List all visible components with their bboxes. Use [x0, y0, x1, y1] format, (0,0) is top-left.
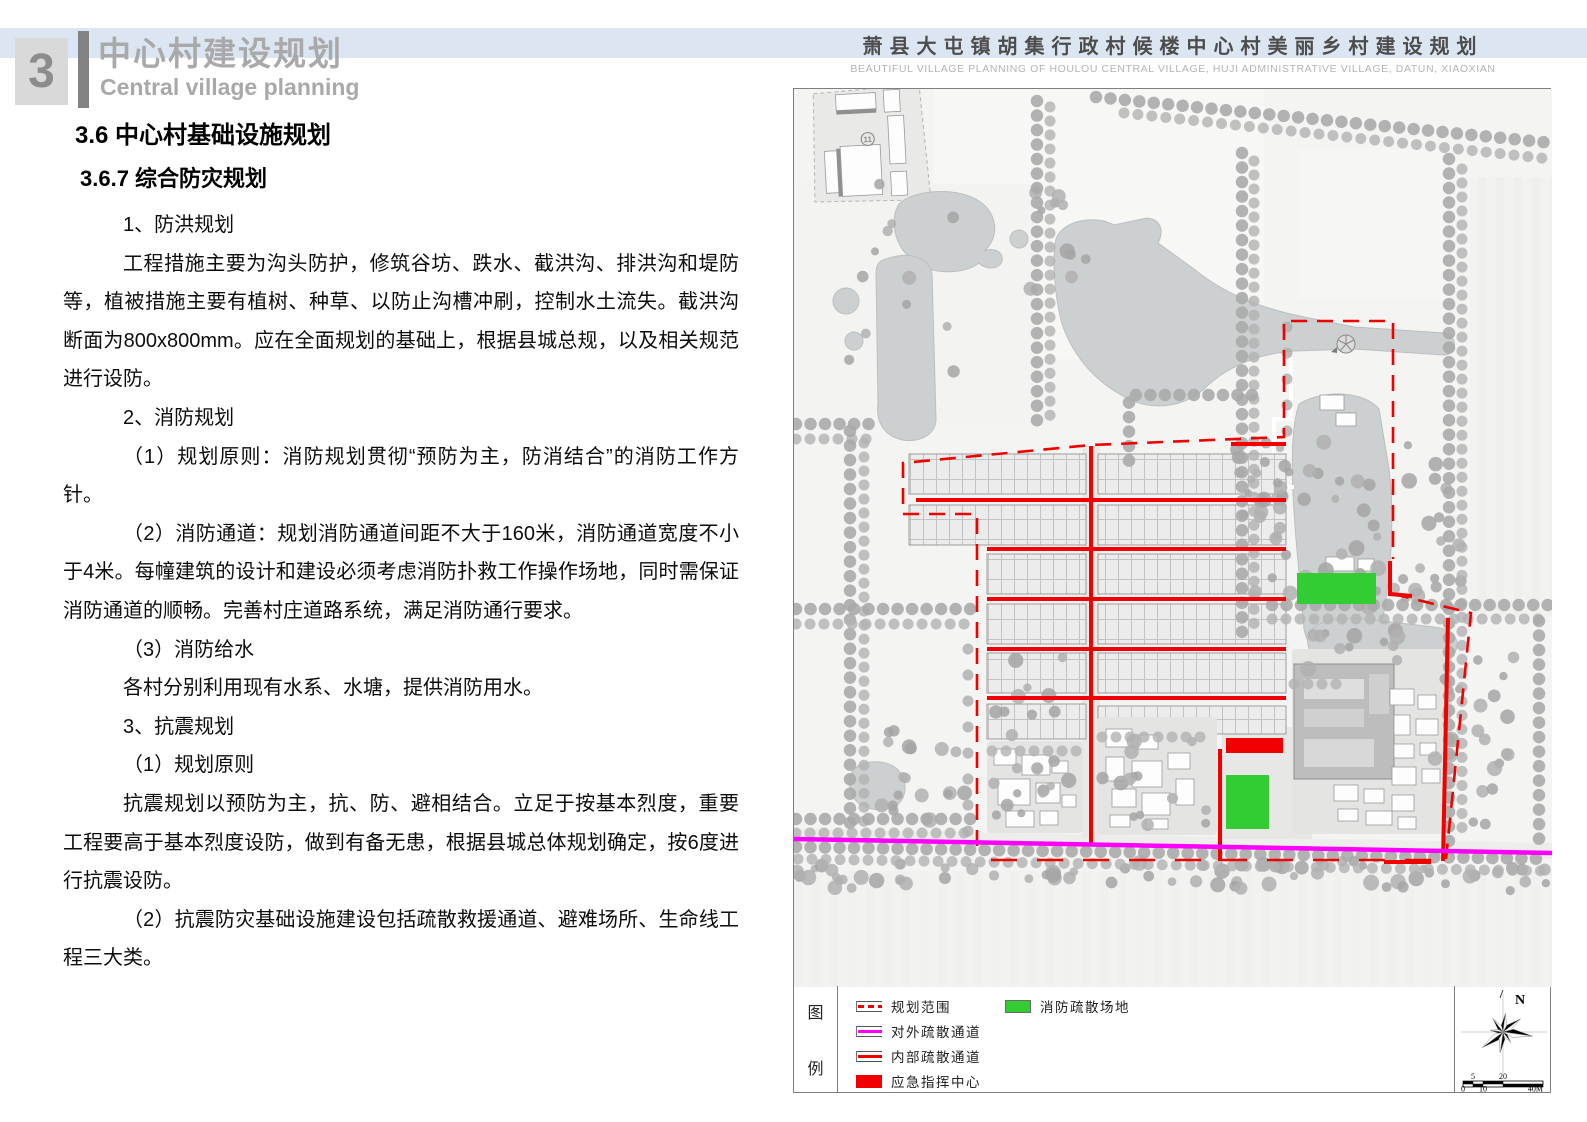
- body-paragraph: 1、防洪规划: [63, 206, 739, 245]
- emergency-command-center: [1226, 738, 1283, 753]
- chapter-number-box: 3: [15, 38, 68, 105]
- subsection-heading: 3.6.7 综合防灾规划: [80, 161, 267, 193]
- site-plan-svg: 11: [794, 89, 1552, 987]
- body-paragraph: 3、抗震规划: [63, 708, 739, 747]
- body-paragraph: （1）规划原则：消防规划贯彻“预防为主，防消结合”的消防工作方针。: [63, 438, 739, 515]
- chapter-divider-bar: [78, 31, 89, 108]
- legend-label: 内部疏散通道: [891, 1046, 981, 1066]
- section-heading: 3.6 中心村基础设施规划: [75, 115, 331, 150]
- svg-text:0: 0: [1461, 1085, 1465, 1093]
- farm-field-texture: [1470, 177, 1552, 617]
- red-rect-icon: [856, 1075, 882, 1088]
- north-label: N: [1515, 993, 1525, 1008]
- body-paragraph: （2）抗震防灾基础设施建设包括疏散救援通道、避难场所、生命线工程三大类。: [63, 901, 739, 978]
- red-dashed-line-icon: [856, 1001, 882, 1012]
- fire-evacuation-site-2: [1226, 775, 1269, 829]
- document-title-en: BEAUTIFUL VILLAGE PLANNING OF HOULOU CEN…: [793, 63, 1553, 75]
- legend-item: 对外疏散通道: [856, 1021, 981, 1041]
- legend-item: 消防疏散场地: [1005, 996, 1130, 1016]
- legend-label: 消防疏散场地: [1040, 996, 1130, 1016]
- body-paragraph: 2、消防规划: [63, 399, 739, 438]
- legend-title-char-2: 例: [807, 1055, 823, 1079]
- svg-text:20: 20: [1499, 1072, 1507, 1081]
- legend-items: 规划范围消防疏散场地对外疏散通道内部疏散通道应急指挥中心: [838, 986, 1454, 1092]
- svg-text:5: 5: [1471, 1072, 1475, 1081]
- magenta-line-icon: [856, 1026, 882, 1037]
- legend-label: 对外疏散通道: [891, 1021, 981, 1041]
- body-paragraph: （1）规划原则: [63, 746, 739, 785]
- north-arrow: N 5 20 0 10 40M: [1455, 986, 1550, 1092]
- chapter-number: 3: [28, 44, 55, 99]
- svg-text:10: 10: [1479, 1085, 1487, 1093]
- document-title-block: 萧县大屯镇胡集行政村候楼中心村美丽乡村建设规划 BEAUTIFUL VILLAG…: [793, 30, 1553, 75]
- body-paragraph: 抗震规划以预防为主，抗、防、避相结合。立足于按基本烈度，重要工程要高于基本烈度设…: [63, 785, 739, 901]
- legend-label: 规划范围: [891, 996, 951, 1016]
- legend-row: 应急指挥中心: [856, 1070, 1454, 1092]
- legend-title-char-1: 图: [807, 999, 823, 1023]
- body-paragraph: （2）消防通道：规划消防通道间距不大于160米，消防通道宽度不小于4米。每幢建筑…: [63, 515, 739, 631]
- body-paragraph: （3）消防给水: [63, 631, 739, 670]
- compass-cell: N 5 20 0 10 40M: [1454, 986, 1550, 1092]
- scale-bar: 5 20 0 10 40M: [1461, 1072, 1543, 1092]
- red-line-icon: [856, 1051, 882, 1062]
- legend-item: 规划范围: [856, 996, 951, 1016]
- site-plan-map: 11: [793, 88, 1551, 986]
- legend-row: 对外疏散通道: [856, 1020, 1454, 1042]
- legend-item: 应急指挥中心: [856, 1071, 981, 1091]
- legend-row: 内部疏散通道: [856, 1045, 1454, 1067]
- legend-title: 图 例: [794, 986, 838, 1092]
- site-plan-panel: 11: [793, 88, 1551, 1093]
- legend-label: 应急指挥中心: [891, 1071, 981, 1091]
- parcel-label: 11: [863, 135, 872, 144]
- chapter-title-en: Central village planning: [100, 74, 359, 101]
- chapter-title-cn: 中心村建设规划: [98, 27, 343, 75]
- green-rect-icon: [1005, 1000, 1031, 1013]
- legend-item: 内部疏散通道: [856, 1046, 981, 1066]
- body-paragraph: 各村分别利用现有水系、水塘，提供消防用水。: [63, 669, 739, 708]
- svg-text:40M: 40M: [1528, 1085, 1543, 1093]
- document-title-cn: 萧县大屯镇胡集行政村候楼中心村美丽乡村建设规划: [793, 30, 1553, 59]
- fire-evacuation-site-1: [1297, 573, 1376, 604]
- legend-row: 规划范围消防疏散场地: [856, 995, 1454, 1017]
- north-parcel: 11: [809, 89, 931, 206]
- body-paragraph: 工程措施主要为沟头防护，修筑谷坊、跌水、截洪沟、排洪沟和堤防等，植被措施主要有植…: [63, 245, 739, 399]
- legend-panel: 图 例 规划范围消防疏散场地对外疏散通道内部疏散通道应急指挥中心 N 5 20: [793, 985, 1551, 1093]
- body-text: 1、防洪规划工程措施主要为沟头防护，修筑谷坊、跌水、截洪沟、排洪沟和堤防等，植被…: [63, 206, 739, 978]
